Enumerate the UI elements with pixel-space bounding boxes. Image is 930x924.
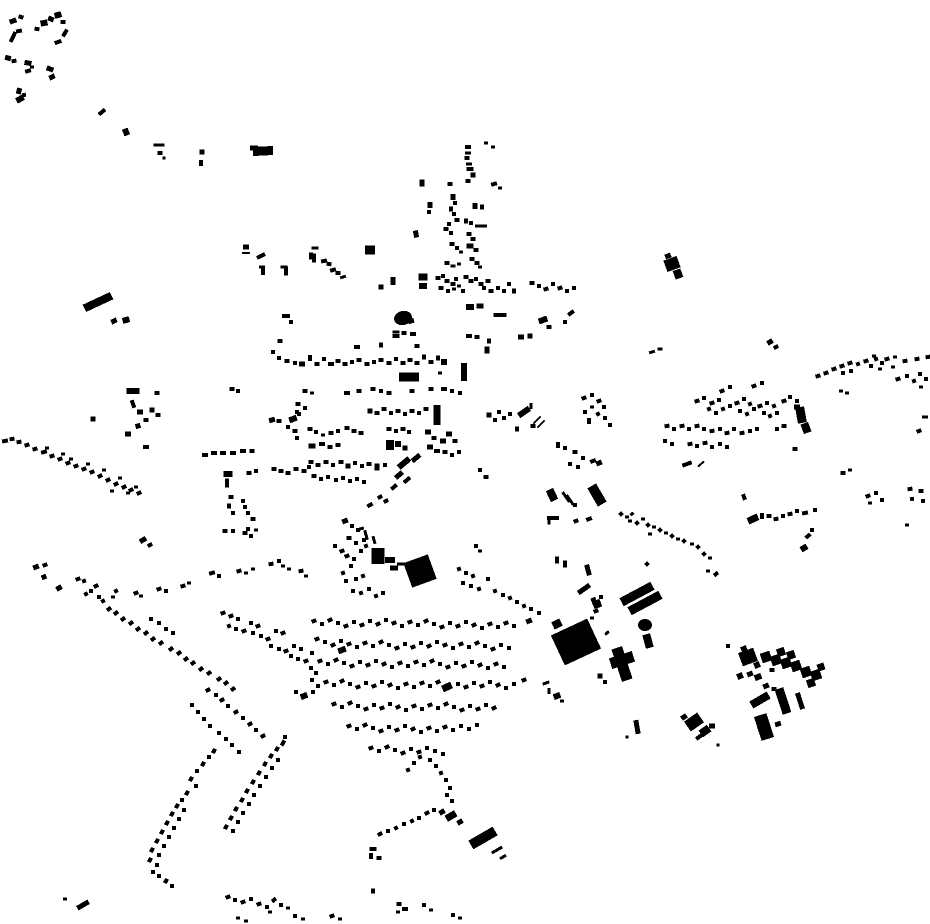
building-footprint: [467, 167, 474, 171]
building-footprint: [417, 754, 422, 759]
building-footprint: [546, 488, 558, 502]
building-footprint: [754, 673, 763, 681]
building-footprint: [630, 512, 635, 517]
building-footprint: [394, 470, 404, 480]
building-footprint: [340, 705, 344, 709]
building-footprint: [345, 426, 350, 430]
building-footprint: [200, 150, 205, 155]
building-footprint: [599, 595, 603, 599]
building-footprint: [385, 557, 395, 563]
building-footprint: [709, 429, 715, 434]
building-footprint: [383, 463, 387, 467]
building-footprint: [308, 427, 313, 431]
building-footprint: [400, 624, 404, 628]
building-footprint: [469, 584, 473, 588]
building-footprint: [721, 407, 726, 412]
building-footprint: [596, 398, 602, 403]
building-footprint: [307, 465, 311, 469]
building-footprint: [419, 680, 425, 685]
building-footprint: [438, 662, 442, 666]
building-footprint: [590, 393, 594, 397]
building-footprint: [512, 682, 516, 686]
building-footprint: [507, 595, 512, 600]
building-footprint: [455, 218, 460, 222]
building-footprint: [230, 451, 236, 455]
building-footprint: [328, 445, 333, 449]
building-footprint: [390, 483, 398, 491]
building-footprint: [868, 502, 872, 505]
building-footprint: [680, 713, 688, 721]
building-footprint: [865, 493, 871, 498]
building-footprint: [434, 764, 438, 768]
building-footprint: [332, 683, 336, 687]
building-footprint: [752, 407, 756, 411]
building-footprint: [429, 658, 435, 664]
building-footprint: [608, 423, 612, 427]
building-footprint: [230, 743, 234, 747]
building-footprint: [121, 484, 127, 490]
building-footprint: [486, 666, 490, 670]
building-footprint: [196, 710, 200, 714]
building-footprint: [277, 559, 281, 563]
building-footprint: [394, 429, 398, 433]
building-footprint: [154, 144, 165, 147]
building-footprint: [734, 400, 740, 405]
building-footprint: [496, 286, 500, 290]
building-footprint: [410, 644, 416, 649]
building-footprint: [314, 430, 318, 434]
building-footprint: [548, 520, 551, 525]
building-footprint: [799, 544, 808, 553]
building-footprint: [219, 697, 225, 703]
building-footprint: [343, 362, 348, 366]
building-footprint: [9, 437, 15, 442]
building-footprint: [236, 389, 240, 393]
building-footprint: [452, 705, 456, 709]
building-footprint: [375, 411, 380, 415]
building-footprint: [464, 275, 469, 279]
building-footprint: [269, 644, 273, 648]
building-footprint: [417, 816, 421, 820]
building-footprint: [352, 620, 356, 624]
building-footprint: [319, 442, 325, 446]
building-footprint: [54, 39, 62, 45]
building-footprint: [845, 392, 849, 395]
building-footprint: [393, 825, 398, 830]
building-footprint: [486, 577, 490, 581]
building-footprint: [379, 358, 384, 362]
building-footprint: [774, 721, 781, 728]
building-footprint: [863, 358, 869, 363]
building-footprint: [530, 403, 533, 409]
building-footprint: [412, 685, 416, 689]
building-footprint: [584, 564, 592, 576]
building-footprint: [465, 156, 470, 160]
building-footprint: [874, 491, 878, 495]
building-footprint: [157, 853, 161, 857]
building-footprint: [278, 339, 283, 343]
building-footprint: [441, 682, 453, 693]
building-footprint: [244, 572, 248, 575]
building-footprint: [336, 443, 341, 447]
building-footprint: [451, 913, 455, 917]
building-footprint: [490, 646, 496, 651]
building-footprint: [396, 409, 401, 413]
building-footprint: [180, 798, 184, 802]
building-footprint: [413, 230, 419, 238]
building-footprint: [847, 360, 853, 365]
building-footprint: [41, 574, 47, 580]
building-footprint: [710, 445, 714, 449]
building-footprint: [372, 548, 385, 564]
building-footprint: [432, 622, 436, 626]
building-footprint: [553, 692, 562, 700]
building-footprint: [695, 444, 699, 448]
building-footprint: [577, 583, 591, 595]
building-footprint: [270, 766, 274, 770]
building-footprint: [542, 680, 550, 685]
building-footprint: [233, 709, 239, 715]
building-footprint: [387, 725, 391, 729]
building-footprint: [831, 366, 837, 371]
building-footprint: [349, 663, 355, 668]
building-footprint: [24, 60, 32, 66]
building-footprint: [924, 377, 928, 381]
building-footprint: [794, 405, 800, 410]
building-footprint: [363, 706, 369, 711]
building-footprint: [823, 370, 829, 375]
building-footprint: [512, 624, 516, 628]
building-footprint: [337, 646, 347, 654]
building-footprint: [268, 562, 274, 567]
building-footprint: [100, 598, 105, 603]
building-footprint: [595, 411, 600, 416]
building-footprint: [415, 361, 420, 365]
building-footprint: [396, 686, 400, 690]
building-footprint: [477, 304, 484, 309]
building-footprint: [206, 670, 212, 676]
building-footprint: [726, 644, 730, 648]
building-footprint: [41, 449, 48, 454]
building-footprint: [310, 651, 314, 655]
building-footprint: [150, 408, 155, 413]
building-footprint: [452, 288, 456, 291]
building-footprint: [590, 617, 594, 620]
building-footprint: [355, 645, 359, 649]
building-footprint: [251, 568, 255, 571]
building-footprint: [407, 430, 411, 434]
building-footprint: [143, 445, 149, 449]
building-footprint: [356, 704, 360, 708]
building-footprint: [445, 664, 451, 669]
building-footprint: [507, 282, 511, 286]
building-footprint: [209, 570, 216, 575]
building-footprint: [139, 595, 143, 598]
building-footprint: [247, 802, 251, 806]
building-footprint: [921, 499, 925, 503]
building-footprint: [576, 465, 580, 469]
building-footprint: [295, 436, 299, 440]
building-footprint: [336, 359, 341, 363]
building-footprint: [468, 704, 472, 708]
building-footprint: [371, 889, 375, 894]
building-footprint: [512, 289, 516, 294]
building-footprint: [504, 686, 508, 690]
building-footprint: [450, 389, 454, 393]
building-footprint: [687, 427, 691, 431]
building-footprint: [428, 758, 432, 762]
building-footprint: [314, 636, 320, 641]
building-footprint: [352, 429, 357, 433]
building-footprint: [321, 259, 328, 264]
building-footprint: [293, 361, 297, 365]
building-footprint: [268, 753, 274, 759]
building-footprint: [339, 548, 345, 553]
building-footprint: [16, 29, 23, 34]
building-footprint: [419, 274, 428, 281]
building-footprint: [163, 878, 169, 884]
building-footprint: [471, 173, 476, 178]
building-footprint: [239, 797, 245, 803]
building-footprint: [285, 359, 290, 363]
building-footprint: [279, 903, 283, 907]
building-footprint: [303, 658, 309, 663]
building-footprint: [249, 621, 253, 625]
building-footprint: [767, 514, 772, 518]
building-footprint: [451, 728, 455, 732]
building-footprint: [379, 343, 383, 348]
building-footprint: [451, 646, 455, 650]
building-footprint: [323, 679, 329, 684]
building-footprint: [384, 618, 388, 622]
building-footprint: [358, 660, 362, 664]
building-footprint: [277, 647, 281, 651]
building-footprint: [113, 610, 119, 616]
building-footprint: [355, 684, 361, 689]
building-footprint: [347, 700, 353, 706]
building-footprint: [135, 423, 141, 429]
building-footprint: [289, 320, 293, 324]
building-footprint: [409, 747, 413, 751]
building-footprint: [787, 512, 793, 517]
building-footprint: [644, 561, 650, 567]
building-footprint: [473, 203, 478, 209]
building-footprint: [489, 289, 494, 293]
building-footprint: [719, 388, 725, 393]
building-footprint: [358, 590, 363, 595]
building-footprint: [446, 289, 450, 293]
building-footprint: [126, 492, 130, 495]
building-footprint: [728, 385, 732, 389]
building-footprint: [593, 608, 599, 613]
building-footprint: [480, 205, 484, 210]
building-footprint: [728, 404, 732, 408]
building-footprint: [346, 723, 352, 728]
building-footprint: [471, 622, 477, 628]
building-footprint: [428, 684, 432, 688]
building-footprint: [371, 726, 375, 730]
building-footprint: [914, 357, 920, 362]
building-footprint: [849, 369, 853, 373]
building-footprint: [839, 363, 845, 368]
building-footprint: [379, 285, 384, 290]
building-footprint: [302, 469, 307, 473]
building-footprint: [357, 358, 362, 362]
building-footprint: [158, 640, 164, 646]
building-footprint: [63, 898, 67, 901]
building-footprint: [118, 477, 122, 480]
building-footprint: [348, 682, 352, 686]
building-footprint: [695, 544, 701, 550]
building-footprint: [461, 581, 465, 585]
building-footprint: [706, 570, 710, 573]
building-footprint: [180, 583, 186, 588]
building-footprint: [404, 708, 408, 712]
building-footprint: [746, 671, 753, 678]
building-footprint: [371, 644, 375, 648]
building-footprint: [225, 894, 231, 899]
building-footprint: [388, 702, 392, 706]
building-footprint: [518, 335, 524, 340]
building-footprint: [815, 373, 821, 378]
building-footprint: [256, 901, 262, 906]
building-footprint: [502, 289, 506, 293]
building-footprint: [444, 778, 448, 782]
building-footprint: [220, 610, 226, 615]
building-footprint: [383, 498, 389, 504]
building-footprint: [326, 262, 332, 267]
building-footprint: [448, 786, 452, 790]
building-footprint: [537, 420, 545, 428]
building-footprint: [326, 475, 330, 479]
building-footprint: [252, 793, 256, 797]
building-footprint: [339, 639, 343, 643]
building-footprint: [563, 320, 567, 324]
building-footprint: [456, 818, 464, 825]
building-footprint: [326, 662, 330, 666]
building-footprint: [810, 528, 814, 532]
building-footprint: [396, 911, 400, 914]
building-footprint: [657, 527, 663, 533]
building-footprint: [455, 246, 459, 250]
building-footprint: [216, 676, 222, 682]
building-footprint: [488, 680, 492, 684]
building-footprint: [583, 410, 587, 414]
building-footprint: [102, 469, 106, 472]
building-footprint: [410, 409, 415, 413]
building-footprint: [679, 424, 685, 429]
building-footprint: [652, 526, 656, 529]
building-footprint: [317, 658, 323, 663]
building-footprint: [775, 427, 779, 431]
building-footprint: [474, 544, 478, 548]
building-footprint: [365, 362, 370, 366]
round-building-footprint: [392, 309, 413, 327]
building-footprint: [393, 331, 400, 334]
building-footprint: [486, 279, 491, 283]
building-footprint: [259, 266, 265, 269]
building-footprint: [922, 416, 928, 419]
building-footprint: [249, 534, 253, 538]
building-footprint: [369, 853, 373, 859]
building-footprint: [265, 636, 271, 641]
building-footprint: [147, 542, 153, 548]
building-footprint: [231, 829, 235, 833]
building-footprint: [391, 277, 396, 285]
building-footprint: [449, 231, 453, 235]
building-footprint: [9, 17, 17, 24]
building-footprint: [427, 210, 431, 214]
building-footprint: [327, 617, 333, 623]
building-footprint: [164, 820, 170, 826]
building-footprint: [658, 348, 663, 351]
building-footprint: [912, 379, 917, 384]
building-footprint: [585, 516, 592, 522]
building-footprint: [224, 737, 228, 741]
building-footprint: [258, 784, 262, 788]
building-footprint: [459, 724, 463, 728]
building-footprint: [354, 345, 360, 349]
building-footprint: [164, 589, 168, 593]
building-footprint: [301, 918, 305, 921]
building-footprint: [673, 268, 684, 279]
building-footprint: [329, 913, 335, 918]
building-footprint: [25, 68, 32, 73]
building-footprint: [187, 582, 191, 585]
building-footprint: [718, 427, 722, 431]
building-footprint: [234, 627, 238, 631]
building-footprint: [567, 309, 575, 316]
building-footprint: [236, 617, 240, 621]
building-footprint: [32, 564, 39, 571]
building-footprint: [484, 703, 488, 707]
building-footprint: [690, 543, 694, 546]
building-footprint: [457, 285, 461, 288]
building-footprint: [491, 181, 498, 186]
building-footprint: [377, 749, 381, 753]
building-footprint: [459, 251, 463, 254]
building-footprint: [813, 508, 817, 512]
building-footprint: [281, 266, 288, 269]
building-footprint: [775, 411, 779, 415]
building-footprint: [802, 511, 809, 516]
building-footprint: [461, 363, 467, 381]
building-footprint: [551, 282, 555, 286]
building-footprint: [528, 334, 533, 339]
building-footprint: [156, 586, 162, 591]
building-footprint: [869, 364, 873, 368]
building-footprint: [378, 639, 384, 645]
building-footprint: [362, 480, 366, 484]
building-footprint: [155, 391, 160, 395]
building-footprint: [397, 902, 402, 906]
building-footprint: [277, 356, 281, 360]
building-footprint: [417, 411, 421, 415]
building-footprint: [409, 818, 414, 823]
building-footprint: [249, 897, 253, 901]
building-footprint: [475, 706, 481, 711]
building-footprint: [469, 279, 474, 283]
building-footprint: [531, 424, 536, 428]
building-footprint: [393, 334, 400, 338]
building-footprint: [648, 533, 652, 536]
building-footprint: [339, 460, 344, 464]
building-footprint: [403, 412, 407, 416]
building-footprint: [466, 334, 472, 338]
building-footprint: [320, 622, 324, 626]
building-footprint: [251, 517, 256, 521]
building-footprint: [573, 450, 578, 454]
